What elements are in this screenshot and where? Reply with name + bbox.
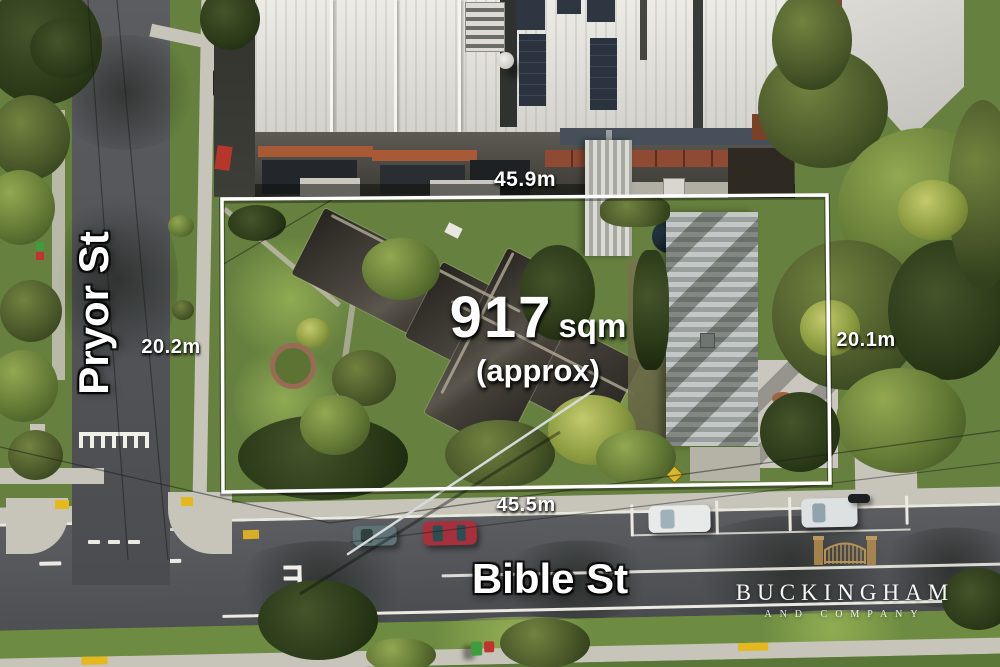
street-name-bible: Bible St	[450, 558, 650, 600]
agency-watermark: BUCKINGHAM AND COMPANY	[725, 532, 965, 620]
area-value: 917	[450, 285, 553, 350]
boundary-length-left: 20.2m	[121, 337, 221, 357]
area-unit: sqm	[558, 307, 626, 344]
gate-icon	[813, 532, 877, 570]
watermark-brand: BUCKINGHAM	[725, 581, 965, 604]
boundary-length-bottom: 45.5m	[476, 495, 576, 515]
watermark-tagline: AND COMPANY	[725, 610, 965, 620]
street-name-pryor: Pryor St	[73, 223, 117, 403]
boundary-length-right: 20.1m	[816, 330, 916, 350]
area-qualifier: (approx)	[428, 353, 648, 389]
area-label: 917sqm (approx)	[428, 284, 648, 389]
boundary-length-top: 45.9m	[475, 169, 575, 190]
aerial-photo: 45.9m 20.2m 20.1m 45.5m 917sqm (approx) …	[0, 0, 1000, 667]
